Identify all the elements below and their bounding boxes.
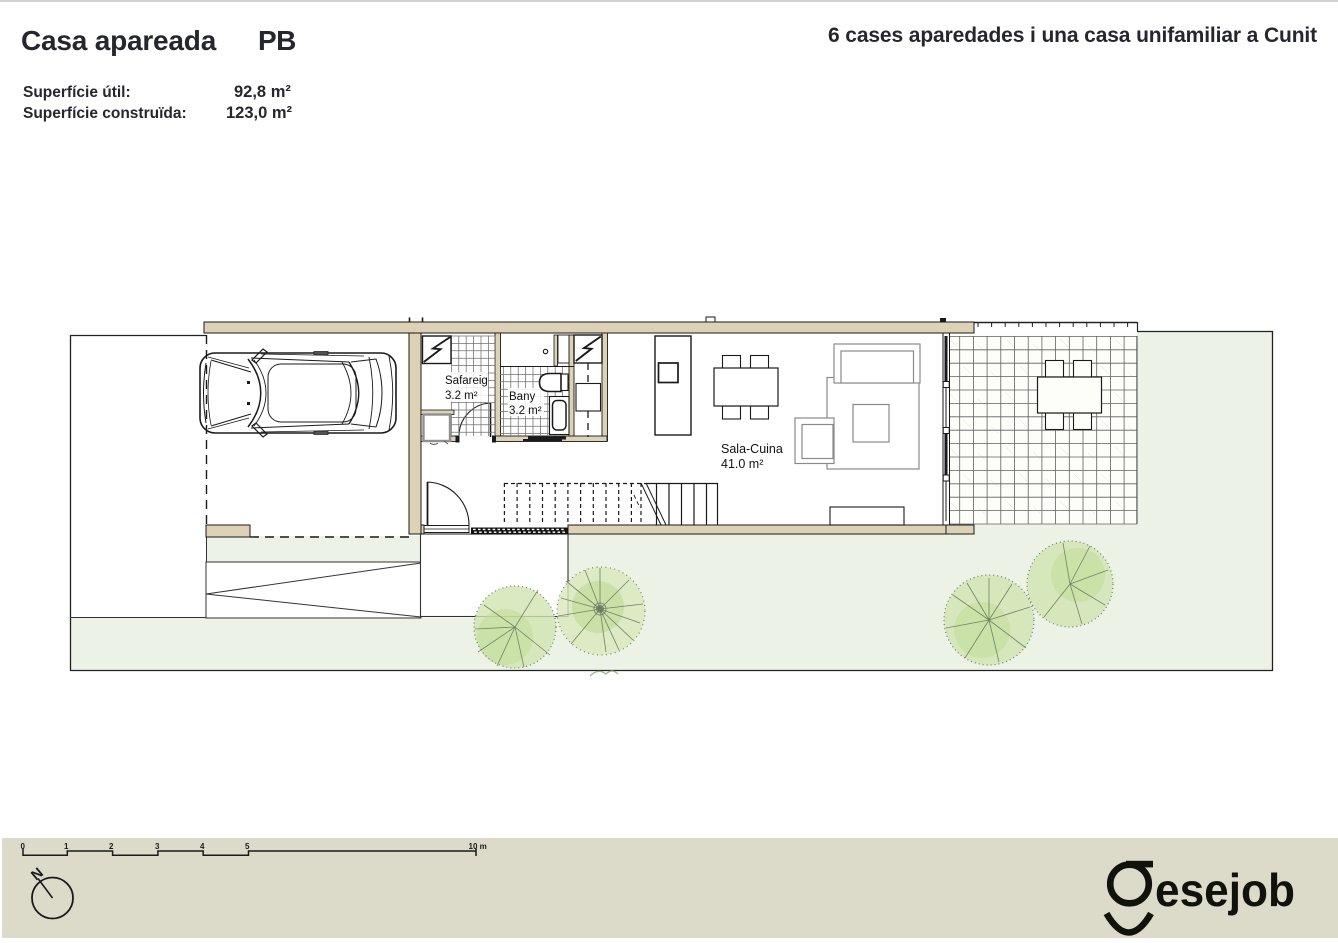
svg-text:4: 4 (200, 842, 205, 851)
svg-text:5: 5 (245, 842, 250, 851)
svg-text:3.2 m²: 3.2 m² (445, 390, 478, 402)
svg-text:Bany: Bany (509, 391, 535, 403)
svg-text:3: 3 (155, 842, 160, 851)
svg-text:Safareig: Safareig (445, 375, 488, 387)
svg-text:41.0 m²: 41.0 m² (721, 457, 763, 471)
svg-text:0: 0 (21, 842, 26, 851)
svg-text:esejob: esejob (1155, 864, 1295, 916)
svg-text:10 m: 10 m (469, 842, 487, 851)
svg-text:3.2 m²: 3.2 m² (509, 405, 542, 417)
svg-text:2: 2 (109, 842, 114, 851)
svg-text:Sala-Cuina: Sala-Cuina (721, 442, 783, 456)
svg-text:1: 1 (64, 842, 69, 851)
